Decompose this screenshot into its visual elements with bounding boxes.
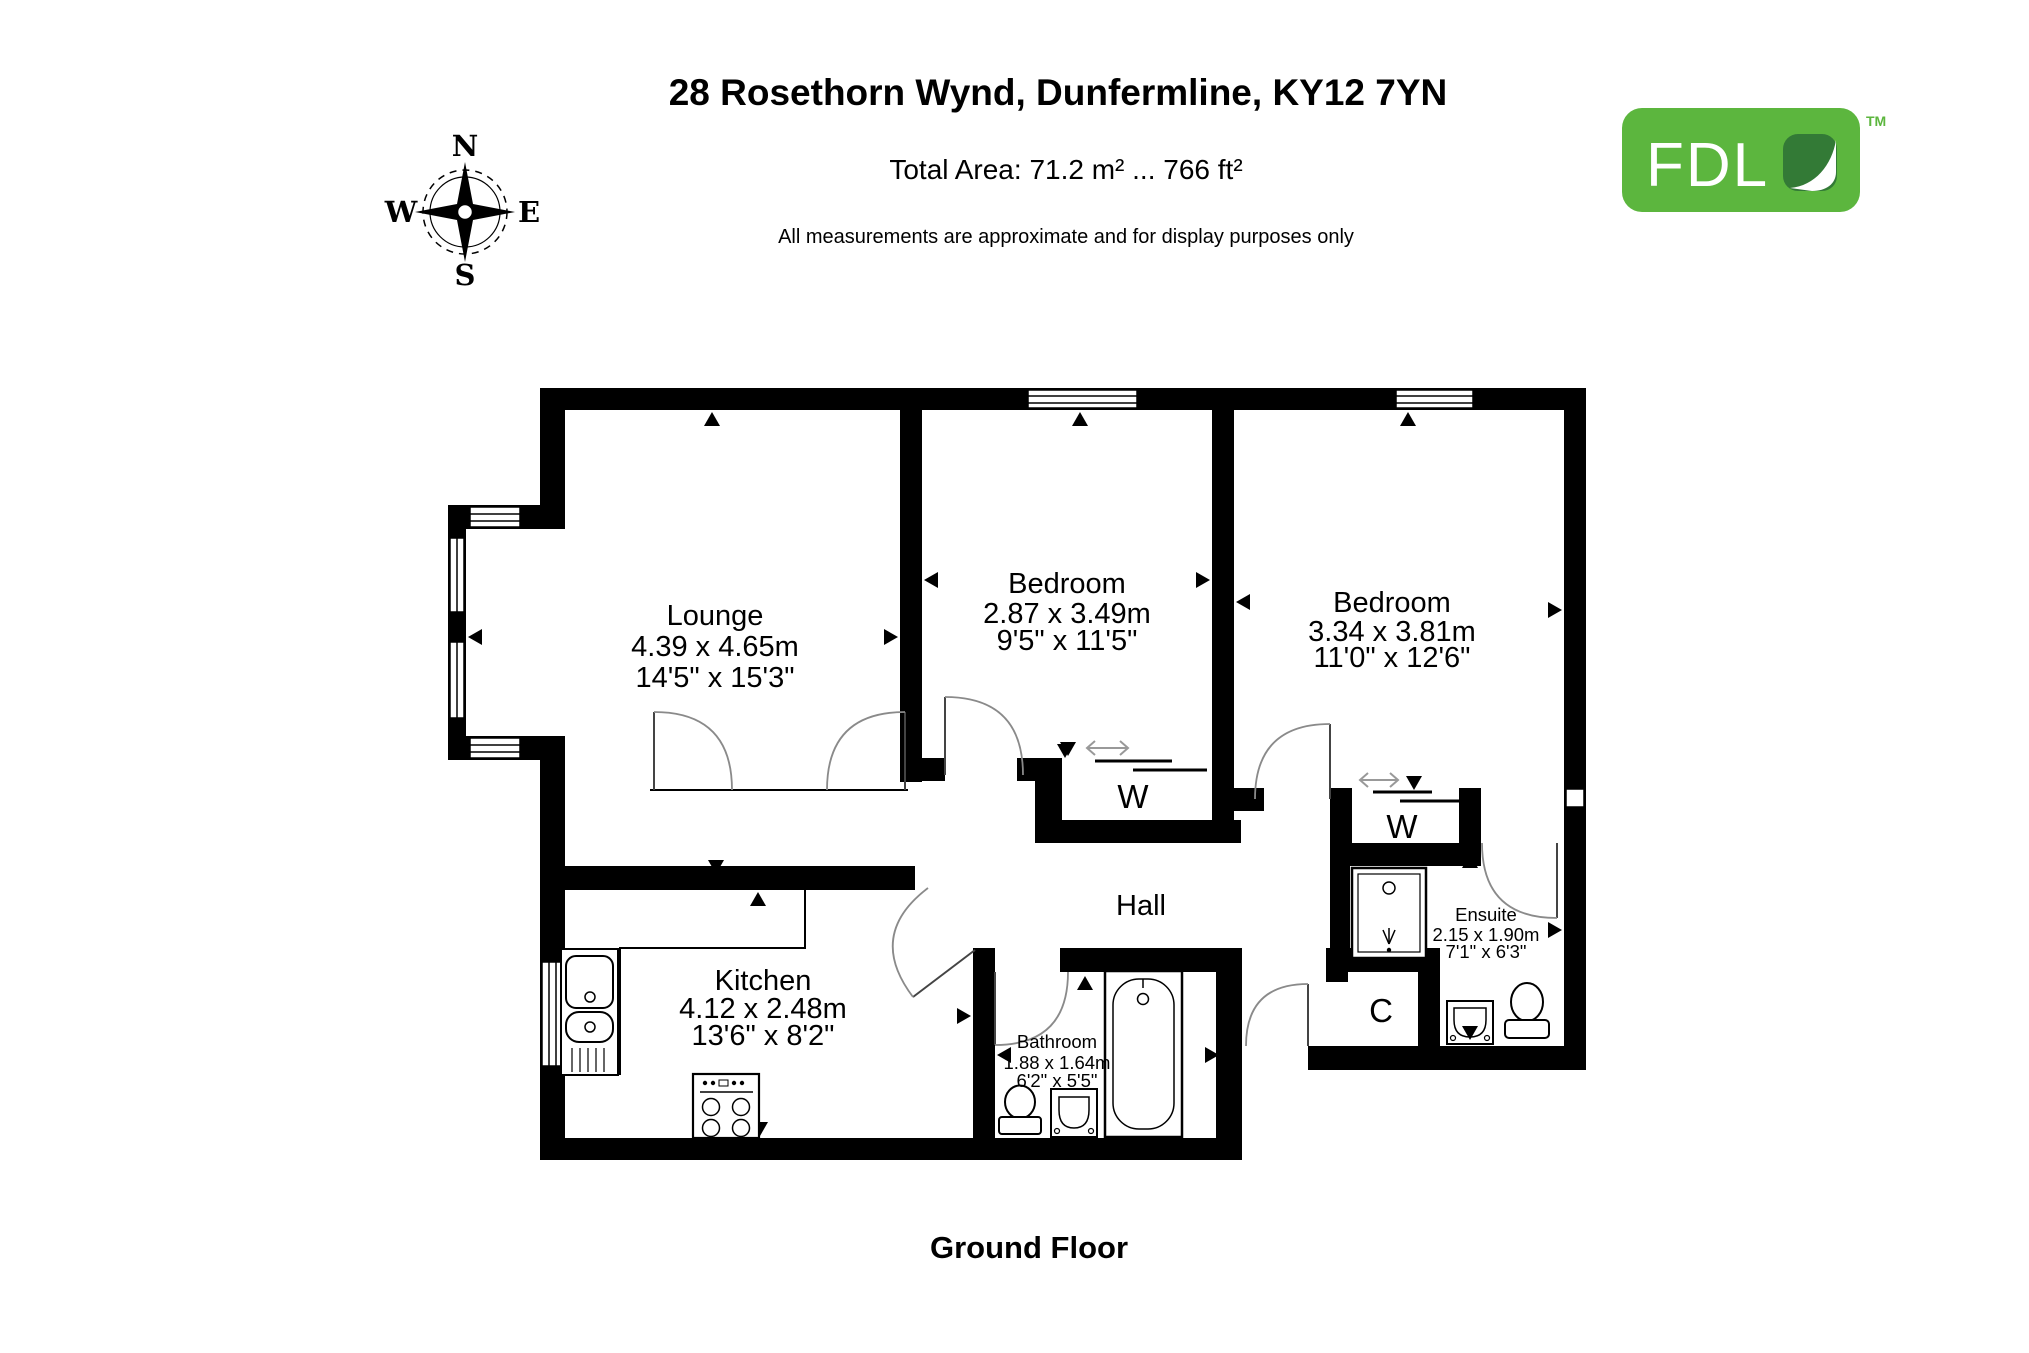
shower-icon [1352,868,1426,958]
bedroom1-door [945,697,1023,775]
bedroom2-name: Bedroom [1333,587,1451,619]
window-bedroom1 [1028,390,1137,408]
compass-south-label: S [455,258,476,292]
floorplan-page: 28 Rosethorn Wynd, Dunfermline, KY12 7YN… [0,0,2029,1353]
room-label-bedroom2: Bedroom 3.34 x 3.81m 11'0" x 12'6" [1308,587,1476,674]
bedroom1-imperial: 9'5" x 11'5" [997,625,1138,657]
logo-text: FDL [1646,131,1769,200]
leaf-icon [1783,134,1837,191]
bathroom-toilet-icon [999,1086,1041,1135]
lounge-metric: 4.39 x 4.65m [631,631,799,663]
bay-window-bottom [470,738,520,758]
room-label-kitchen: Kitchen 4.12 x 2.48m 13'6" x 8'2" [679,965,847,1052]
stove-icon [693,1074,759,1138]
lounge-name: Lounge [667,600,764,632]
wardrobe1-label: W [1117,778,1149,815]
window-bedroom2 [1396,390,1473,408]
bathroom-name: Bathroom [1017,1031,1097,1052]
lounge-imperial: 14'5" x 15'3" [635,662,794,694]
dimension-arrows [468,412,1562,1136]
bathtub-icon [1105,971,1182,1137]
kitchen-door [893,888,975,997]
page-title: 28 Rosethorn Wynd, Dunfermline, KY12 7YN [669,72,1448,113]
window-hall-right [1566,789,1584,807]
kitchen-imperial: 13'6" x 8'2" [692,1020,835,1052]
room-label-lounge: Lounge 4.39 x 4.65m 14'5" x 15'3" [631,600,799,694]
bathroom-imperial: 6'2" x 5'5" [1017,1070,1098,1091]
compass-east-label: E [518,195,540,229]
bedroom2-door [1255,724,1330,799]
wardrobe1-sliding-door [1087,741,1207,770]
lounge-double-door [654,712,905,790]
total-area-label: Total Area: 71.2 m² ... 766 ft² [889,154,1242,185]
ensuite-name: Ensuite [1455,904,1517,925]
compass-rose-icon: N E S W [384,129,540,292]
ensuite-toilet-icon [1505,983,1549,1038]
wardrobe2-label: W [1386,808,1418,845]
floorplan-canvas: 28 Rosethorn Wynd, Dunfermline, KY12 7YN… [0,0,2029,1353]
hall-label: Hall [1116,890,1166,922]
compass-west-label: W [384,195,418,229]
floor-label: Ground Floor [930,1230,1128,1265]
ensuite-imperial: 7'1" x 6'3" [1446,941,1527,962]
brand-logo: FDL TM [1622,108,1886,212]
room-label-bedroom1: Bedroom 2.87 x 3.49m 9'5" x 11'5" [983,568,1151,657]
disclaimer-label: All measurements are approximate and for… [778,226,1354,248]
bathroom-sink-icon [1051,1089,1097,1137]
bay-window-top [470,507,520,527]
kitchen-sink-icon [561,949,618,1075]
compass-north-label: N [452,129,479,163]
bedroom2-imperial: 11'0" x 12'6" [1314,642,1471,674]
bay-window-left-upper [450,538,464,612]
cupboard-label: C [1369,992,1393,1029]
bedroom1-name: Bedroom [1008,568,1126,600]
logo-tm-label: TM [1866,113,1886,129]
window-kitchen [542,962,563,1066]
ensuite-sink-icon [1447,1001,1493,1044]
room-label-bathroom: Bathroom 1.88 x 1.64m 6'2" x 5'5" [1004,1031,1111,1091]
front-door [1246,984,1308,1046]
bay-window-left-lower [450,642,464,718]
